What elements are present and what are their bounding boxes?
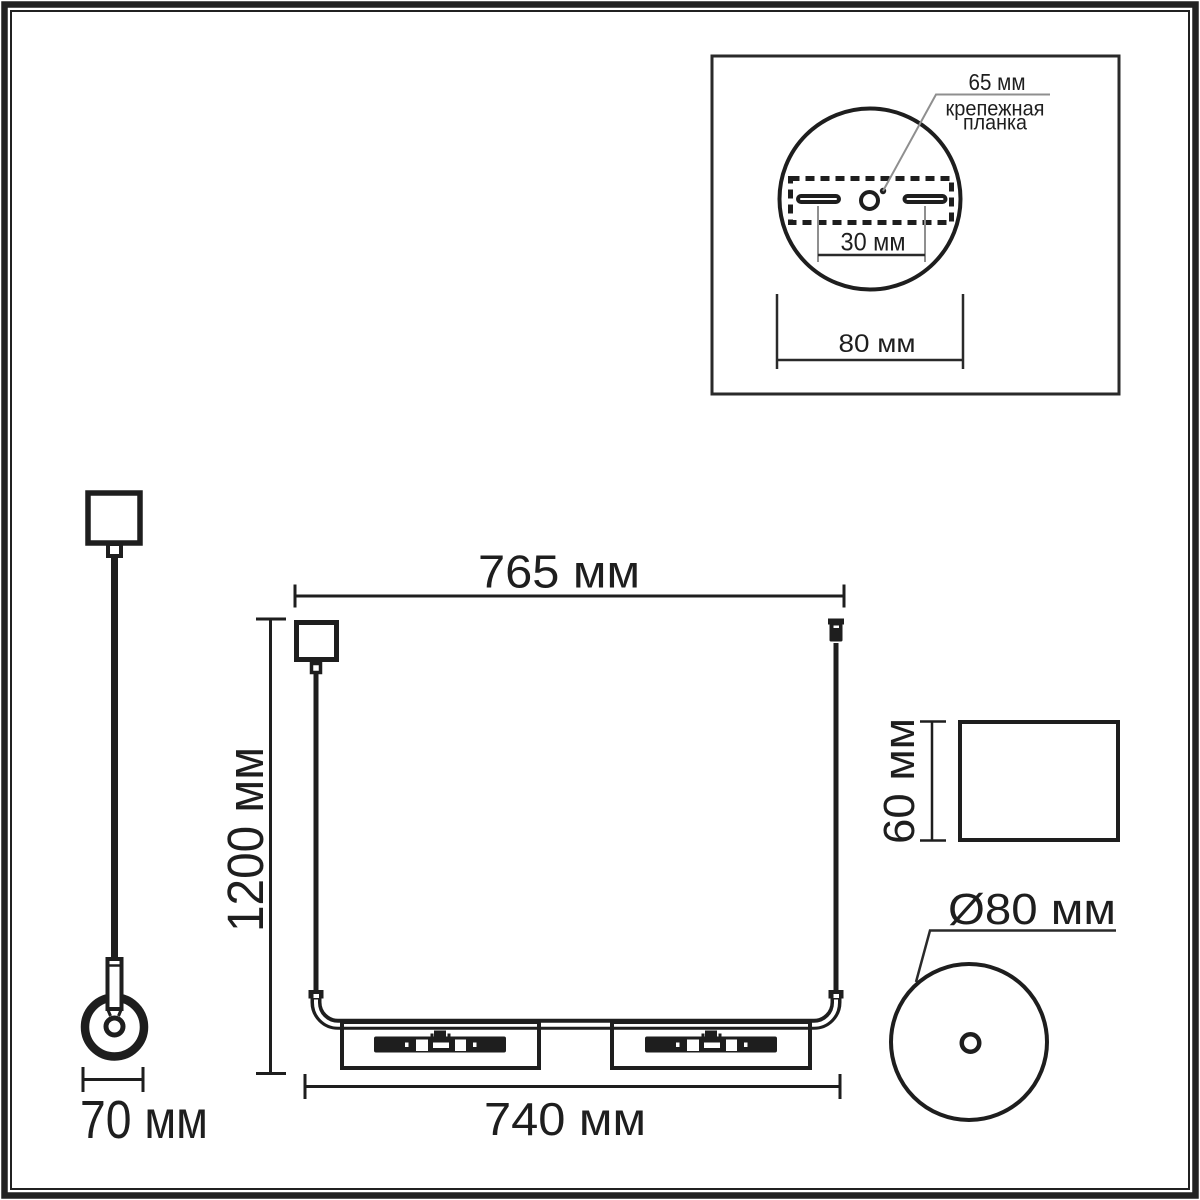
svg-text:планка: планка [963, 112, 1027, 135]
svg-text:765 мм: 765 мм [478, 546, 640, 598]
svg-text:Ø80 мм: Ø80 мм [948, 885, 1116, 934]
svg-text:30 мм: 30 мм [841, 229, 906, 257]
svg-text:80 мм: 80 мм [839, 330, 916, 358]
svg-text:70 мм: 70 мм [80, 1090, 208, 1150]
svg-text:65 мм: 65 мм [969, 69, 1026, 95]
svg-text:60 мм: 60 мм [875, 718, 924, 844]
svg-text:740 мм: 740 мм [484, 1093, 646, 1145]
svg-text:1200 мм: 1200 мм [217, 747, 274, 932]
